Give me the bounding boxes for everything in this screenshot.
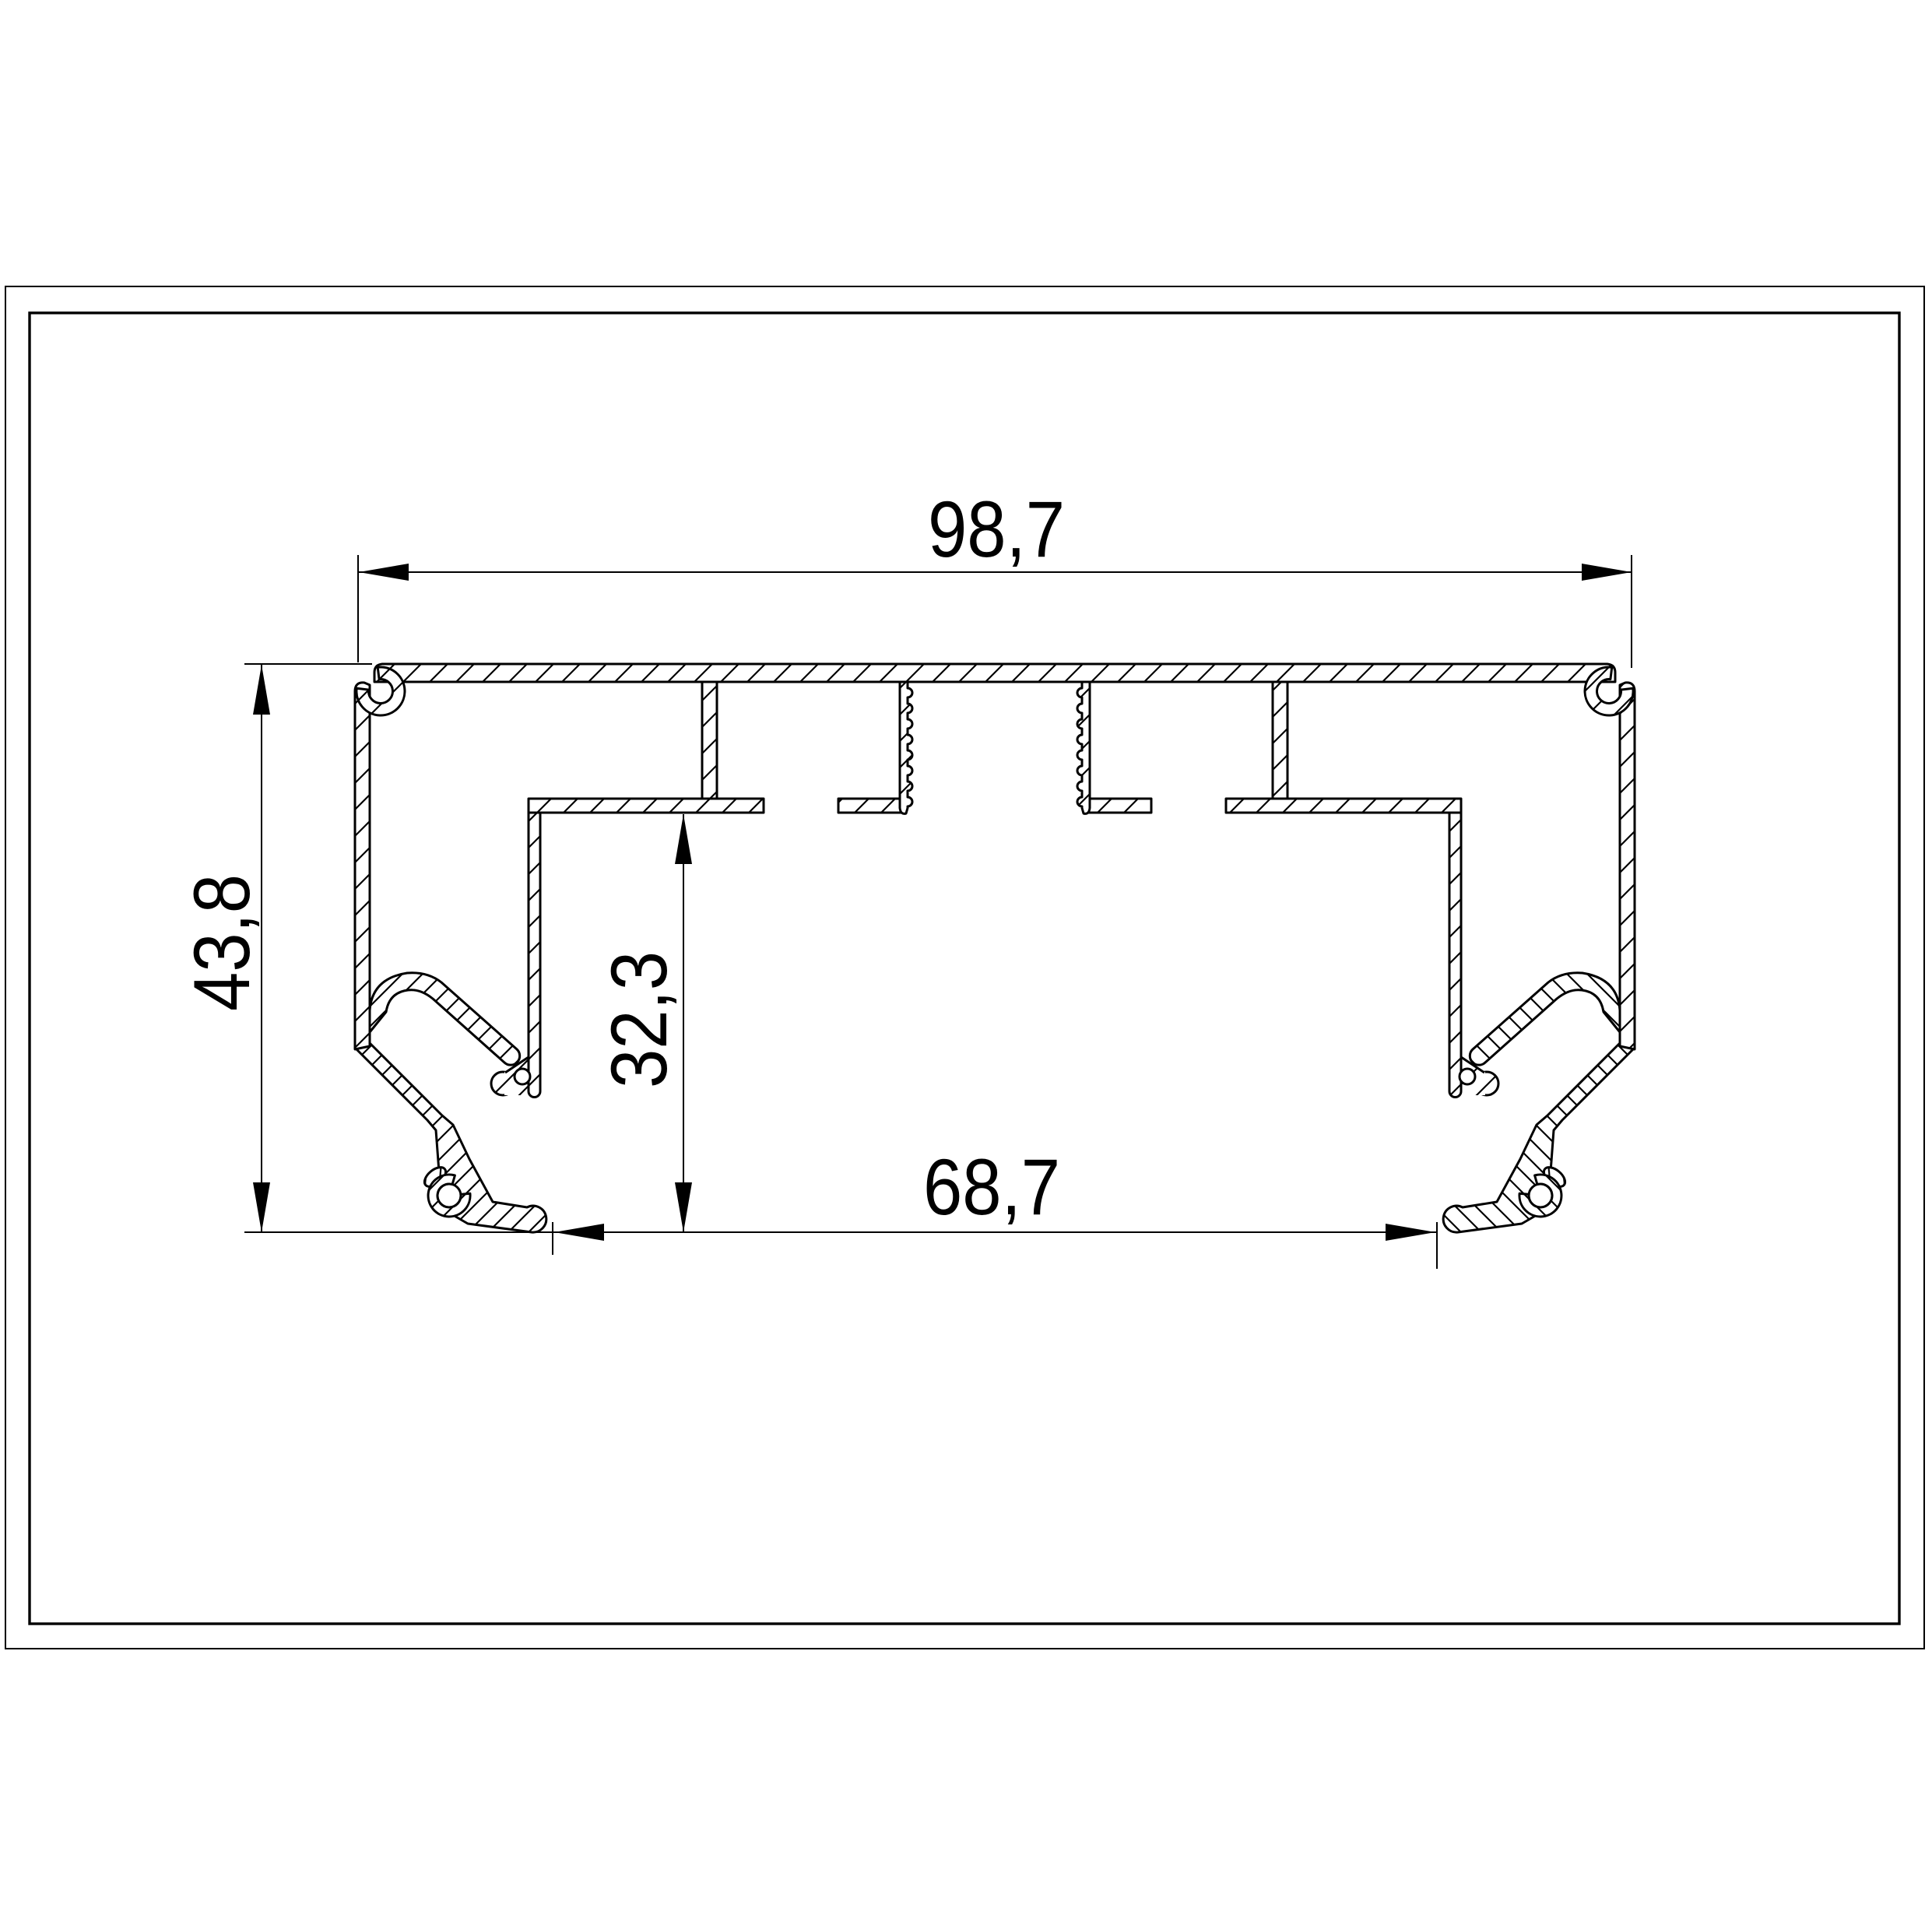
svg-text:68,7: 68,7: [923, 1143, 1060, 1231]
svg-text:43,8: 43,8: [177, 874, 266, 1011]
svg-text:32,3: 32,3: [595, 951, 683, 1088]
svg-text:98,7: 98,7: [928, 485, 1065, 574]
